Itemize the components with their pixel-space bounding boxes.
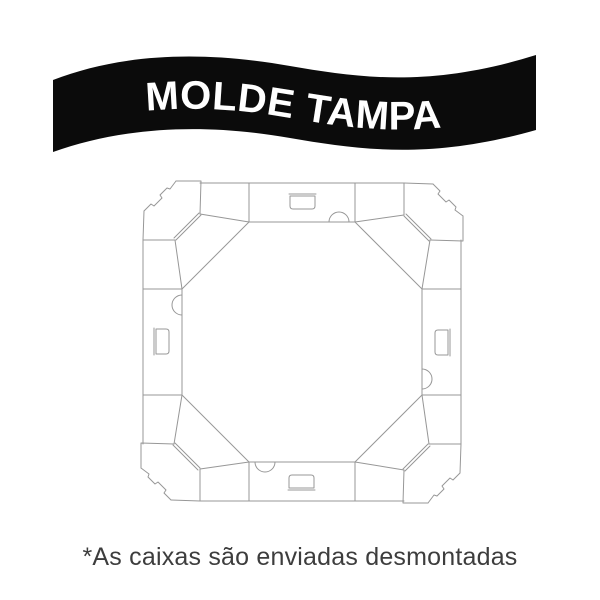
artwork-canvas: MOLDE TAMPA (0, 0, 600, 600)
die-cut-unit-bottom (141, 395, 422, 501)
die-cut-unit-top (182, 183, 463, 289)
banner-ribbon: MOLDE TAMPA (53, 55, 536, 152)
footnote: *As caixas são enviadas desmontadas (0, 543, 600, 572)
page: MOLDE TAMPA (0, 0, 600, 600)
die-cut-unit-right (355, 222, 461, 503)
die-cut-unit-left (143, 181, 249, 462)
die-cut-template (141, 181, 463, 503)
